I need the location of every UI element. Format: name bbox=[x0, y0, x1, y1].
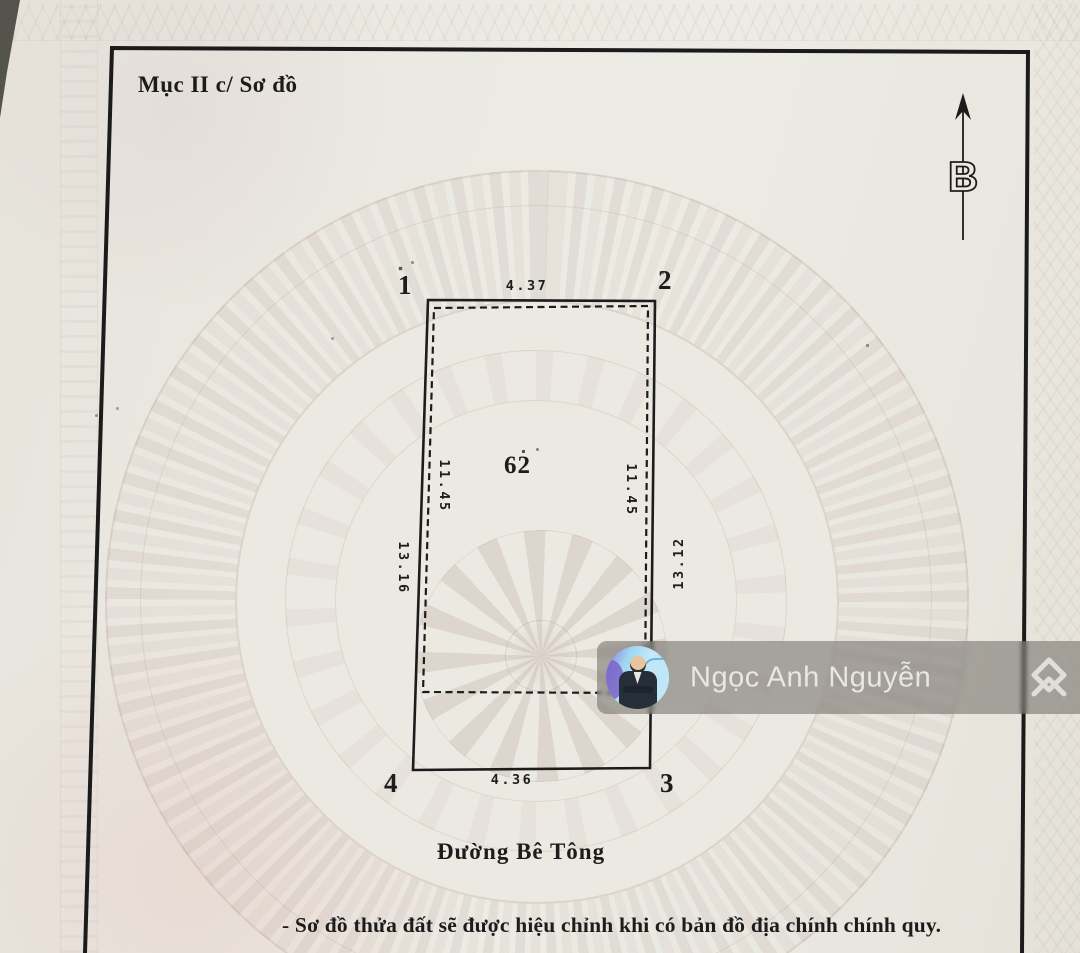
dust-specks bbox=[0, 0, 1, 1]
north-arrow-icon: B bbox=[930, 88, 1000, 253]
dimension-right-outer: 13.12 bbox=[671, 536, 687, 589]
parcel-number: 62 bbox=[504, 452, 531, 480]
avatar bbox=[606, 646, 669, 709]
footnote: - Sơ đồ thửa đất sẽ được hiệu chỉnh khi … bbox=[282, 913, 941, 938]
dimension-left-outer: 13.16 bbox=[395, 541, 411, 594]
north-label: B bbox=[948, 153, 978, 200]
avatar-person-arms bbox=[623, 686, 653, 693]
double-chevron-home-icon bbox=[1026, 654, 1072, 702]
dimension-left-inner: 11.45 bbox=[436, 459, 452, 512]
section-title: Mục II c/ Sơ đồ bbox=[138, 72, 298, 98]
watermark-name: Ngọc Anh Nguyễn bbox=[690, 661, 931, 694]
guilloche-right-band bbox=[1034, 0, 1080, 953]
road-label: Đường Bê Tông bbox=[437, 839, 605, 865]
corner-label-1: 1 bbox=[398, 272, 412, 299]
dimension-bottom: 4.36 bbox=[491, 772, 534, 788]
corner-label-2: 2 bbox=[658, 267, 672, 294]
cadastral-sketch-photo: Mục II c/ Sơ đồ B 1 2 3 4 62 4.37 4.36 1… bbox=[0, 0, 1080, 953]
corner-label-4: 4 bbox=[384, 770, 398, 797]
watermark-band: Ngọc Anh Nguyễn bbox=[597, 641, 1080, 714]
guilloche-sunburst-hub bbox=[505, 620, 577, 692]
dimension-top: 4.37 bbox=[506, 278, 549, 294]
corner-label-3: 3 bbox=[660, 770, 674, 797]
guilloche-left-band bbox=[60, 0, 98, 953]
dimension-right-inner: 11.45 bbox=[623, 463, 639, 516]
guilloche-top-band bbox=[0, 4, 1080, 41]
